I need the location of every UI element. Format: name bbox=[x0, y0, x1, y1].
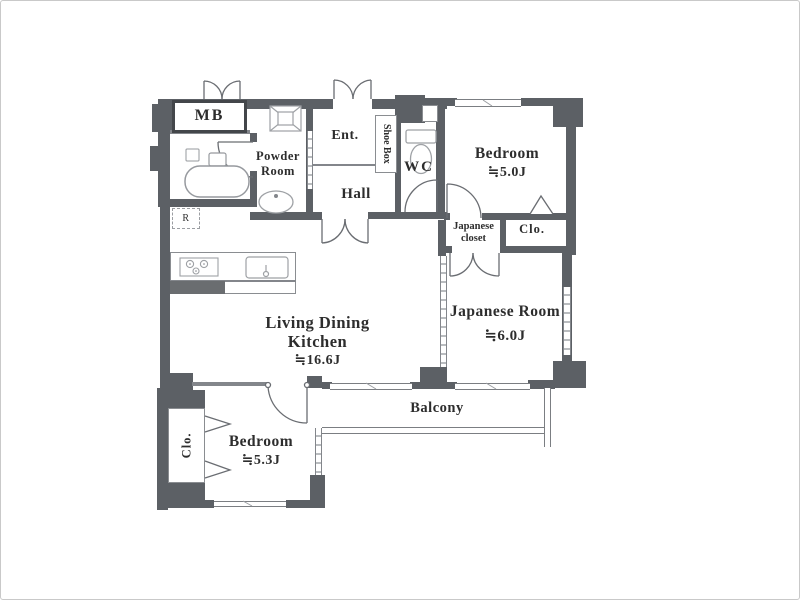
floor-plan: MB Powder Room Ent. Shoe Box WC Hall Bed… bbox=[0, 0, 800, 600]
japanese-closet-label: Japanese closet bbox=[447, 221, 500, 246]
powder-room-label: Powder Room bbox=[244, 149, 312, 179]
mb-room-label: MB bbox=[172, 100, 247, 133]
wall bbox=[168, 390, 205, 408]
wall bbox=[521, 98, 557, 106]
wall bbox=[160, 207, 170, 375]
wall bbox=[438, 220, 446, 256]
window bbox=[455, 383, 530, 390]
bedroom-upper-door-swing-icon bbox=[447, 184, 481, 218]
fixtures-overlay bbox=[0, 0, 800, 600]
japanese-room-name: Japanese Room bbox=[445, 303, 565, 321]
wall bbox=[250, 212, 322, 220]
ldk-line2: Kitchen bbox=[245, 332, 390, 351]
ldk-label: Living Dining Kitchen ≒16.6J bbox=[245, 313, 390, 369]
wall bbox=[500, 246, 576, 253]
closet-upper-label: Clo. bbox=[506, 222, 558, 237]
wall bbox=[307, 376, 322, 388]
bedroom-upper-name: Bedroom bbox=[450, 145, 564, 163]
wc-door-swing-icon bbox=[405, 180, 437, 212]
bedroom-lower-area: ≒5.3J bbox=[200, 453, 322, 470]
balcony-pillar bbox=[553, 361, 586, 388]
bedroom-lower-name: Bedroom bbox=[200, 433, 322, 451]
wall bbox=[168, 500, 214, 508]
wash-basin-icon bbox=[259, 191, 293, 213]
shoe-box-label: Shoe Box bbox=[375, 115, 397, 173]
wall bbox=[158, 199, 254, 207]
wall bbox=[310, 475, 325, 508]
wall bbox=[157, 388, 168, 510]
ldk-line1: Living Dining bbox=[245, 313, 390, 332]
mb-label-text: MB bbox=[195, 107, 225, 126]
bedroom-lower-door-swing-icon bbox=[266, 383, 310, 424]
entrance-step-line bbox=[313, 164, 375, 166]
closet-lower-label: Clo. bbox=[168, 408, 205, 483]
bedroom-lower-label: Bedroom ≒5.3J bbox=[200, 433, 322, 470]
window bbox=[330, 383, 412, 390]
mb-door-swing-icon bbox=[204, 81, 240, 99]
window bbox=[455, 99, 521, 107]
wall bbox=[566, 105, 576, 255]
japanese-room-label: Japanese Room ≒6.0J bbox=[445, 303, 565, 346]
shoe-box-text: Shoe Box bbox=[380, 124, 392, 164]
powder-line2: Room bbox=[244, 164, 312, 179]
wall bbox=[482, 213, 576, 220]
entrance-label: Ent. bbox=[315, 128, 375, 145]
window bbox=[214, 501, 286, 507]
powder-line1: Powder bbox=[244, 149, 312, 164]
wc-label: WC bbox=[399, 159, 439, 177]
closet-lower-text: Clo. bbox=[179, 433, 194, 459]
wall bbox=[420, 367, 447, 389]
ldk-door-swing-icon bbox=[322, 219, 368, 243]
japanese-closet-door-swing-icon bbox=[450, 253, 499, 276]
bathtub-icon bbox=[185, 149, 249, 197]
closet-upper-folding-door-icon bbox=[530, 196, 553, 214]
wall bbox=[158, 99, 170, 207]
hall-label: Hall bbox=[330, 186, 382, 204]
balcony-railing bbox=[322, 427, 550, 434]
ldk-area: ≒16.6J bbox=[245, 353, 390, 370]
image-border bbox=[0, 0, 800, 600]
wall bbox=[250, 133, 257, 142]
japanese-room-area: ≒6.0J bbox=[445, 328, 565, 346]
wc-vent-box bbox=[422, 105, 438, 122]
balcony-railing bbox=[544, 388, 551, 447]
entrance-door-swing-icon bbox=[334, 80, 371, 99]
balcony-label: Balcony bbox=[378, 400, 496, 417]
refrigerator-label: R bbox=[172, 208, 200, 229]
wall-thin bbox=[192, 382, 269, 386]
kitchen-counter-edge bbox=[170, 281, 225, 294]
bedroom-upper-label: Bedroom ≒5.0J bbox=[450, 145, 564, 182]
bedroom-upper-area: ≒5.0J bbox=[450, 165, 564, 182]
wall bbox=[368, 212, 447, 219]
washing-machine-icon bbox=[270, 106, 301, 131]
